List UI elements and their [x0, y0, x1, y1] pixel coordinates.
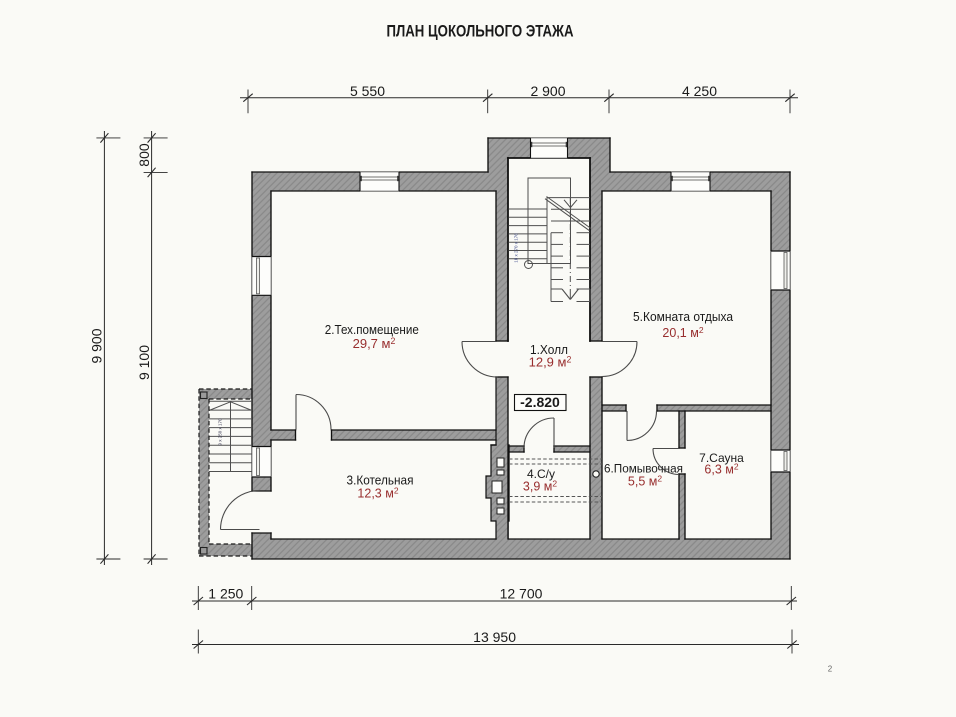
svg-text:ПЛАН ЦОКОЛЬНОГО ЭТАЖА: ПЛАН ЦОКОЛЬНОГО ЭТАЖА: [387, 22, 574, 40]
svg-text:2: 2: [828, 664, 833, 673]
svg-text:13 950: 13 950: [473, 629, 516, 645]
svg-text:1 250: 1 250: [208, 585, 243, 601]
svg-text:2.Тех.помещение: 2.Тех.помещение: [325, 322, 419, 337]
svg-text:9 100: 9 100: [136, 345, 152, 380]
svg-text:3.Котельная: 3.Котельная: [347, 474, 414, 488]
svg-text:12,3 м2: 12,3 м2: [357, 485, 398, 500]
svg-text:12 700: 12 700: [500, 585, 543, 601]
svg-text:5,5 м2: 5,5 м2: [628, 473, 662, 488]
svg-text:4 250: 4 250: [682, 83, 717, 99]
svg-text:6,3 м2: 6,3 м2: [704, 461, 738, 476]
svg-text:3,9 м2: 3,9 м2: [523, 478, 557, 493]
svg-text:9 x 250 x 170: 9 x 250 x 170: [218, 418, 223, 446]
svg-text:5.Комната отдыха: 5.Комната отдыха: [633, 310, 733, 324]
svg-text:800: 800: [136, 143, 152, 167]
svg-text:20,1 м2: 20,1 м2: [662, 325, 703, 340]
svg-text:-2.820: -2.820: [520, 394, 560, 410]
svg-text:29,7 м2: 29,7 м2: [353, 336, 396, 351]
svg-text:9 900: 9 900: [89, 328, 105, 363]
svg-text:12,9 м2: 12,9 м2: [529, 354, 572, 369]
svg-text:5 550: 5 550: [350, 83, 385, 99]
svg-text:18 x 270 x 176: 18 x 270 x 176: [514, 233, 519, 263]
svg-text:2 900: 2 900: [530, 83, 565, 99]
